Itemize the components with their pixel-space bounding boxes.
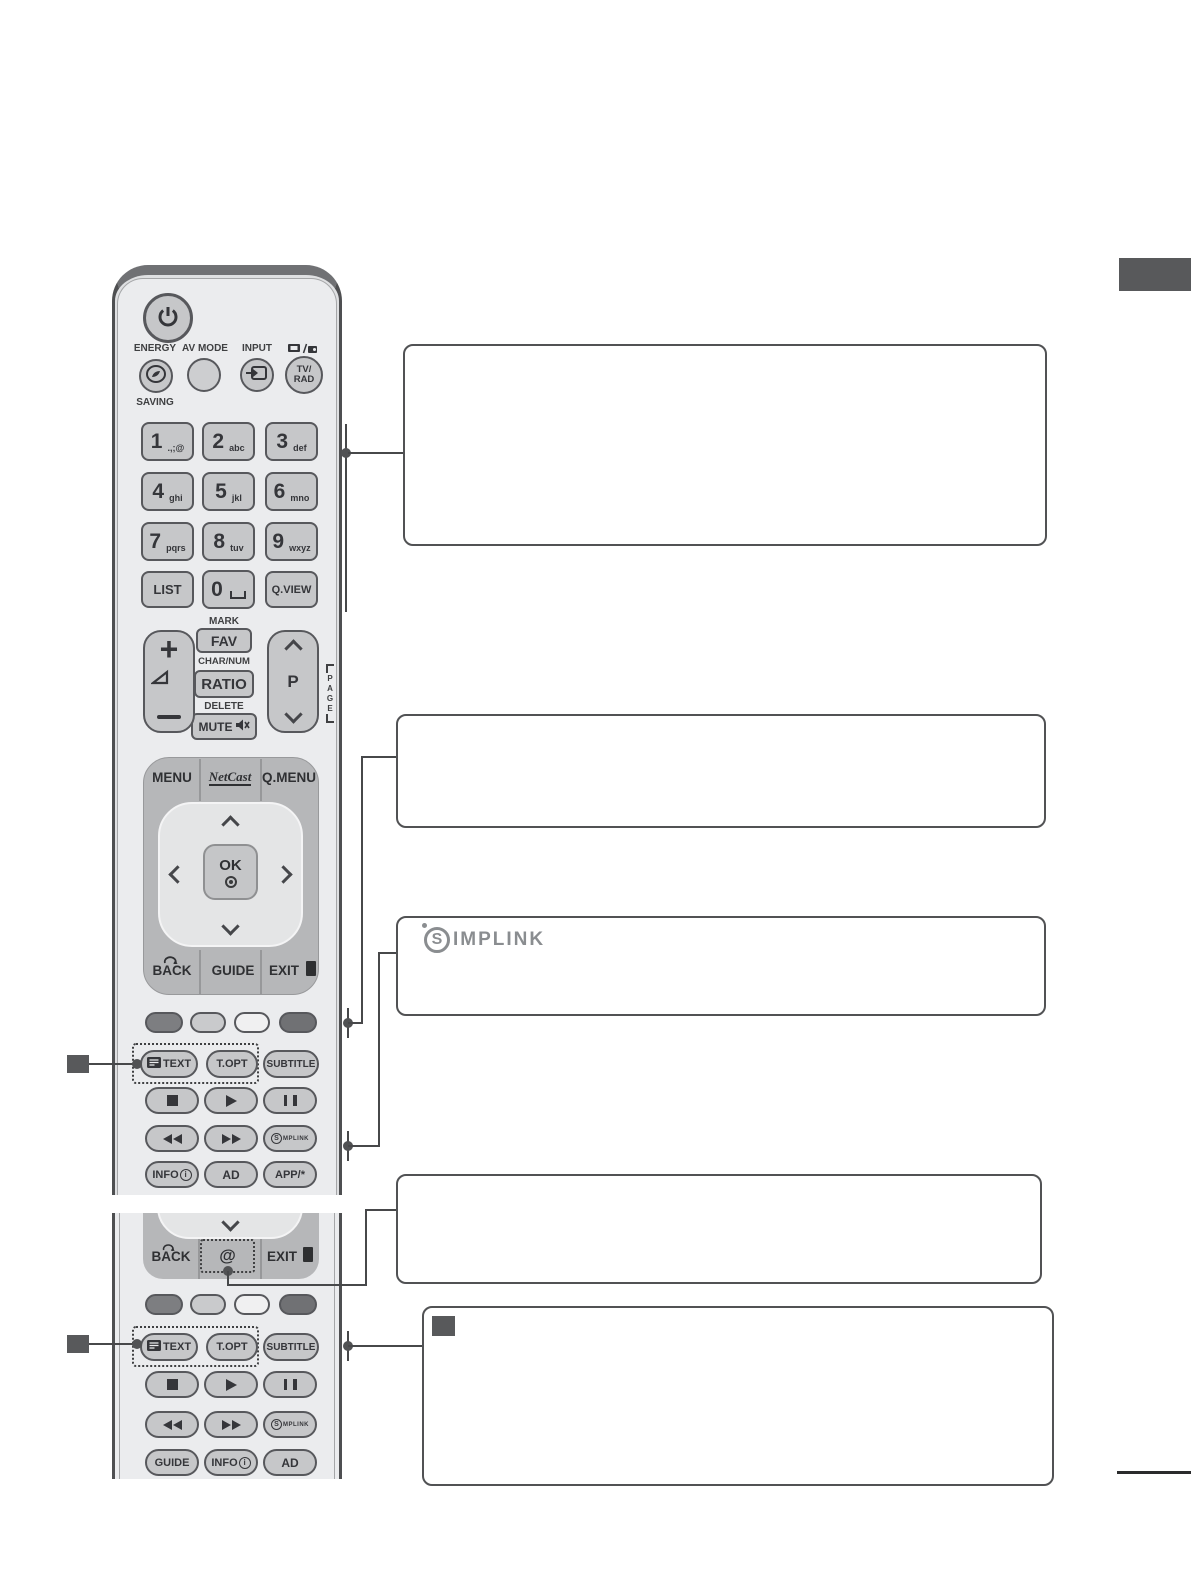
connector-line bbox=[348, 452, 403, 454]
power-icon bbox=[156, 304, 180, 333]
page-vertical-label: P A G E bbox=[324, 650, 336, 736]
subtitle2-button[interactable]: SUBTITLE bbox=[263, 1333, 319, 1361]
digit-7-button[interactable]: 7pqrs bbox=[141, 522, 194, 561]
pause2-button[interactable] bbox=[263, 1371, 317, 1398]
section-tab bbox=[1119, 258, 1191, 291]
ad-button[interactable]: AD bbox=[204, 1161, 258, 1188]
stop-icon bbox=[167, 1095, 178, 1106]
volume-plus-label: + bbox=[160, 634, 179, 664]
digit-0-button[interactable]: 0 bbox=[202, 570, 255, 609]
text-label: TEXT bbox=[163, 1058, 191, 1070]
simplink-s-icon: S bbox=[271, 1419, 282, 1430]
digit-label: 5 bbox=[215, 481, 227, 502]
digit-sub: abc bbox=[229, 443, 245, 459]
at-button[interactable]: @ bbox=[200, 1246, 255, 1266]
teletext-icon bbox=[147, 1340, 161, 1354]
chevron-up-icon bbox=[284, 639, 302, 657]
topt-label: T.OPT bbox=[216, 1058, 247, 1070]
yellow-button[interactable] bbox=[234, 1012, 270, 1033]
connector-line bbox=[89, 1063, 137, 1065]
ad2-button[interactable]: AD bbox=[263, 1449, 317, 1476]
mute-label: MUTE bbox=[199, 720, 233, 734]
digit-sub: tuv bbox=[230, 543, 244, 559]
connector-line bbox=[227, 1284, 367, 1286]
mute-icon bbox=[236, 719, 250, 734]
connector-dot bbox=[132, 1059, 142, 1069]
back2-button[interactable]: BACK bbox=[146, 1249, 196, 1264]
simplink2-button[interactable]: S MPLINK bbox=[263, 1411, 317, 1438]
tv-rad-button[interactable]: TV/ RAD bbox=[285, 356, 323, 394]
connector-line bbox=[365, 1209, 367, 1286]
manual-page: ENERGY AV MODE INPUT TV/ RAD SAVING 1.,;… bbox=[0, 0, 1191, 1587]
saving-label: SAVING bbox=[131, 397, 179, 408]
left-marker-2 bbox=[67, 1335, 89, 1353]
digit-sub: mno bbox=[290, 493, 309, 509]
input-icon bbox=[245, 363, 269, 388]
play2-button[interactable] bbox=[204, 1371, 258, 1398]
menu-button[interactable]: MENU bbox=[146, 770, 198, 785]
fav-label: FAV bbox=[211, 633, 237, 649]
teletext-icon bbox=[147, 1057, 161, 1071]
text-button[interactable]: TEXT bbox=[140, 1050, 198, 1078]
left-marker-1 bbox=[67, 1055, 89, 1073]
callout-box-2 bbox=[396, 714, 1046, 828]
target-icon bbox=[225, 876, 237, 888]
connector-line bbox=[365, 1209, 396, 1211]
blue-button[interactable] bbox=[279, 1012, 317, 1033]
space-icon bbox=[230, 591, 246, 599]
subtitle2-label: SUBTITLE bbox=[267, 1342, 316, 1353]
topt2-button[interactable]: T.OPT bbox=[206, 1333, 258, 1361]
rewind-icon bbox=[173, 1420, 182, 1430]
blue-button-2[interactable] bbox=[279, 1294, 317, 1315]
stop2-button[interactable] bbox=[145, 1371, 199, 1398]
info-button[interactable]: INFO i bbox=[145, 1161, 199, 1188]
footer-rule bbox=[1117, 1471, 1191, 1474]
digit-6-button[interactable]: 6mno bbox=[265, 472, 318, 511]
simplink-small-label: MPLINK bbox=[283, 1422, 309, 1428]
page-hook-bottom-icon bbox=[326, 714, 334, 723]
rewind-icon bbox=[163, 1420, 172, 1430]
connector-line bbox=[378, 952, 396, 954]
text2-button[interactable]: TEXT bbox=[140, 1333, 198, 1361]
digit-label: 4 bbox=[152, 481, 164, 502]
chevron-down-icon bbox=[284, 705, 302, 723]
digit-9-button[interactable]: 9wxyz bbox=[265, 522, 318, 561]
delete-label: DELETE bbox=[198, 701, 250, 712]
nav-divider bbox=[199, 950, 201, 994]
power-button[interactable] bbox=[143, 293, 193, 343]
remote2-rail bbox=[119, 1213, 120, 1479]
exit2-door-icon bbox=[303, 1247, 313, 1262]
stop-button[interactable] bbox=[145, 1087, 199, 1114]
callout-box-4 bbox=[396, 1174, 1042, 1284]
digit-label: 7 bbox=[149, 531, 161, 552]
connector-line bbox=[378, 953, 380, 1147]
remote2-rail bbox=[334, 1213, 335, 1479]
digit-sub: pqrs bbox=[166, 543, 186, 559]
red-button-2[interactable] bbox=[145, 1294, 183, 1315]
nav-divider bbox=[260, 950, 262, 994]
back-button[interactable]: BACK bbox=[147, 963, 197, 978]
green-button[interactable] bbox=[190, 1012, 226, 1033]
ratio-button[interactable]: RATIO bbox=[194, 670, 254, 698]
connector-dot bbox=[132, 1339, 142, 1349]
digit-1-button[interactable]: 1.,;@ bbox=[141, 422, 194, 461]
ad-label: AD bbox=[222, 1168, 239, 1182]
ratio-label: RATIO bbox=[201, 676, 247, 693]
page-letter: G bbox=[327, 694, 333, 703]
rewind-button[interactable] bbox=[145, 1125, 199, 1152]
subtitle-button[interactable]: SUBTITLE bbox=[263, 1050, 319, 1078]
nav-divider bbox=[199, 759, 201, 801]
digit-3-button[interactable]: 3def bbox=[265, 422, 318, 461]
simplink-logo-dot bbox=[422, 923, 427, 928]
fav-button[interactable]: FAV bbox=[196, 628, 252, 653]
rewind-icon bbox=[163, 1134, 172, 1144]
yellow-button-2[interactable] bbox=[234, 1294, 270, 1315]
digit-sub: def bbox=[293, 443, 307, 459]
exit2-button[interactable]: EXIT bbox=[262, 1249, 302, 1264]
input-label: INPUT bbox=[236, 343, 278, 354]
pause-icon bbox=[284, 1095, 288, 1106]
input-button[interactable] bbox=[240, 358, 274, 392]
eco-icon bbox=[144, 364, 168, 389]
fast-forward-icon bbox=[222, 1420, 231, 1430]
play-button[interactable] bbox=[204, 1087, 258, 1114]
energy-label: ENERGY bbox=[131, 343, 179, 354]
simplink-small-label: MPLINK bbox=[283, 1136, 309, 1142]
app-label: APP/* bbox=[275, 1169, 305, 1181]
digit-label: 3 bbox=[276, 431, 288, 452]
digit-2-button[interactable]: 2abc bbox=[202, 422, 255, 461]
volume-rocker[interactable]: + bbox=[143, 630, 195, 733]
info2-label: INFO bbox=[211, 1457, 237, 1469]
fast-forward-icon bbox=[232, 1134, 241, 1144]
qmenu-button[interactable]: Q.MENU bbox=[261, 770, 317, 785]
digit-label: 0 bbox=[211, 579, 223, 600]
list-label: LIST bbox=[153, 582, 181, 597]
page-letter: E bbox=[327, 704, 332, 713]
digit-sub: wxyz bbox=[289, 543, 311, 559]
topt2-label: T.OPT bbox=[216, 1341, 247, 1353]
ad2-label: AD bbox=[281, 1456, 298, 1470]
qview-button[interactable]: Q.VIEW bbox=[265, 571, 318, 608]
simplink-logo-text: IMPLINK bbox=[453, 929, 545, 951]
digit-sub: ghi bbox=[169, 493, 183, 509]
digit-label: 1 bbox=[151, 431, 163, 452]
simplink-logo: S IMPLINK bbox=[424, 925, 545, 955]
callout-5-marker bbox=[432, 1316, 455, 1336]
charnum-label: CHAR/NUM bbox=[190, 656, 258, 667]
digit-label: 2 bbox=[212, 431, 224, 452]
programme-label: P bbox=[287, 672, 298, 692]
connector-line bbox=[89, 1343, 137, 1345]
ok-button[interactable]: OK bbox=[203, 844, 258, 900]
app-button[interactable]: APP/* bbox=[263, 1161, 317, 1188]
callout-box-1 bbox=[403, 344, 1047, 546]
page-hook-top-icon bbox=[326, 664, 334, 673]
info-i-icon: i bbox=[239, 1457, 251, 1469]
fast-forward2-button[interactable] bbox=[204, 1411, 258, 1438]
digit-8-button[interactable]: 8tuv bbox=[202, 522, 255, 561]
simplink-button[interactable]: S MPLINK bbox=[263, 1125, 317, 1152]
simplink-s-icon: S bbox=[271, 1133, 282, 1144]
digit-5-button[interactable]: 5jkl bbox=[202, 472, 255, 511]
netcast-button[interactable]: NetCast bbox=[201, 768, 259, 786]
ok-label: OK bbox=[219, 857, 242, 874]
info-label: INFO bbox=[152, 1169, 178, 1181]
play-icon bbox=[226, 1095, 237, 1107]
info2-button[interactable]: INFO i bbox=[204, 1449, 258, 1476]
digit-label: 8 bbox=[213, 531, 225, 552]
pause-icon bbox=[293, 1095, 297, 1106]
digit-sub: .,;@ bbox=[167, 443, 184, 459]
page-letter: A bbox=[327, 684, 333, 693]
text2-label: TEXT bbox=[163, 1341, 191, 1353]
digit-4-button[interactable]: 4ghi bbox=[141, 472, 194, 511]
connector-line bbox=[348, 1022, 362, 1024]
av-mode-button[interactable] bbox=[187, 358, 221, 392]
fast-forward-icon bbox=[232, 1420, 241, 1430]
guide2-label: GUIDE bbox=[155, 1457, 190, 1469]
netcast-logo: NetCast bbox=[209, 769, 252, 786]
info-i-icon: i bbox=[180, 1169, 192, 1181]
list-button[interactable]: LIST bbox=[141, 571, 194, 608]
guide2-button[interactable]: GUIDE bbox=[145, 1449, 199, 1476]
exit-door-icon bbox=[306, 961, 316, 976]
nav-divider bbox=[260, 759, 262, 801]
pause-icon bbox=[284, 1379, 288, 1390]
page-letter: P bbox=[327, 674, 332, 683]
mute-button[interactable]: MUTE bbox=[191, 713, 257, 740]
tv-rad-line2: RAD bbox=[294, 375, 315, 385]
callout-box-5 bbox=[422, 1306, 1054, 1486]
digit-label: 6 bbox=[274, 481, 286, 502]
rewind2-button[interactable] bbox=[145, 1411, 199, 1438]
energy-saving-button[interactable] bbox=[139, 359, 173, 393]
guide-button[interactable]: GUIDE bbox=[206, 963, 260, 978]
digit-label: 9 bbox=[272, 531, 284, 552]
mark-label: MARK bbox=[196, 616, 252, 627]
programme-rocker[interactable]: P bbox=[267, 630, 319, 733]
connector-line bbox=[348, 1145, 379, 1147]
topt-button[interactable]: T.OPT bbox=[206, 1050, 258, 1078]
play-icon bbox=[226, 1379, 237, 1391]
connector-line bbox=[361, 757, 363, 1024]
red-button[interactable] bbox=[145, 1012, 183, 1033]
speaker-icon bbox=[151, 669, 169, 690]
qview-label: Q.VIEW bbox=[272, 584, 312, 596]
connector-line bbox=[361, 756, 396, 758]
green-button-2[interactable] bbox=[190, 1294, 226, 1315]
simplink-logo-s: S bbox=[424, 927, 450, 953]
rewind-icon bbox=[173, 1134, 182, 1144]
fast-forward-button[interactable] bbox=[204, 1125, 258, 1152]
av-mode-label: AV MODE bbox=[180, 343, 230, 354]
pause-icon bbox=[293, 1379, 297, 1390]
exit-button[interactable]: EXIT bbox=[262, 963, 306, 978]
connector-line bbox=[348, 1345, 422, 1347]
volume-minus-icon bbox=[157, 715, 181, 720]
stop-icon bbox=[167, 1379, 178, 1390]
fast-forward-icon bbox=[222, 1134, 231, 1144]
digit-sub: jkl bbox=[232, 493, 242, 509]
pause-button[interactable] bbox=[263, 1087, 317, 1114]
subtitle-label: SUBTITLE bbox=[267, 1059, 316, 1070]
